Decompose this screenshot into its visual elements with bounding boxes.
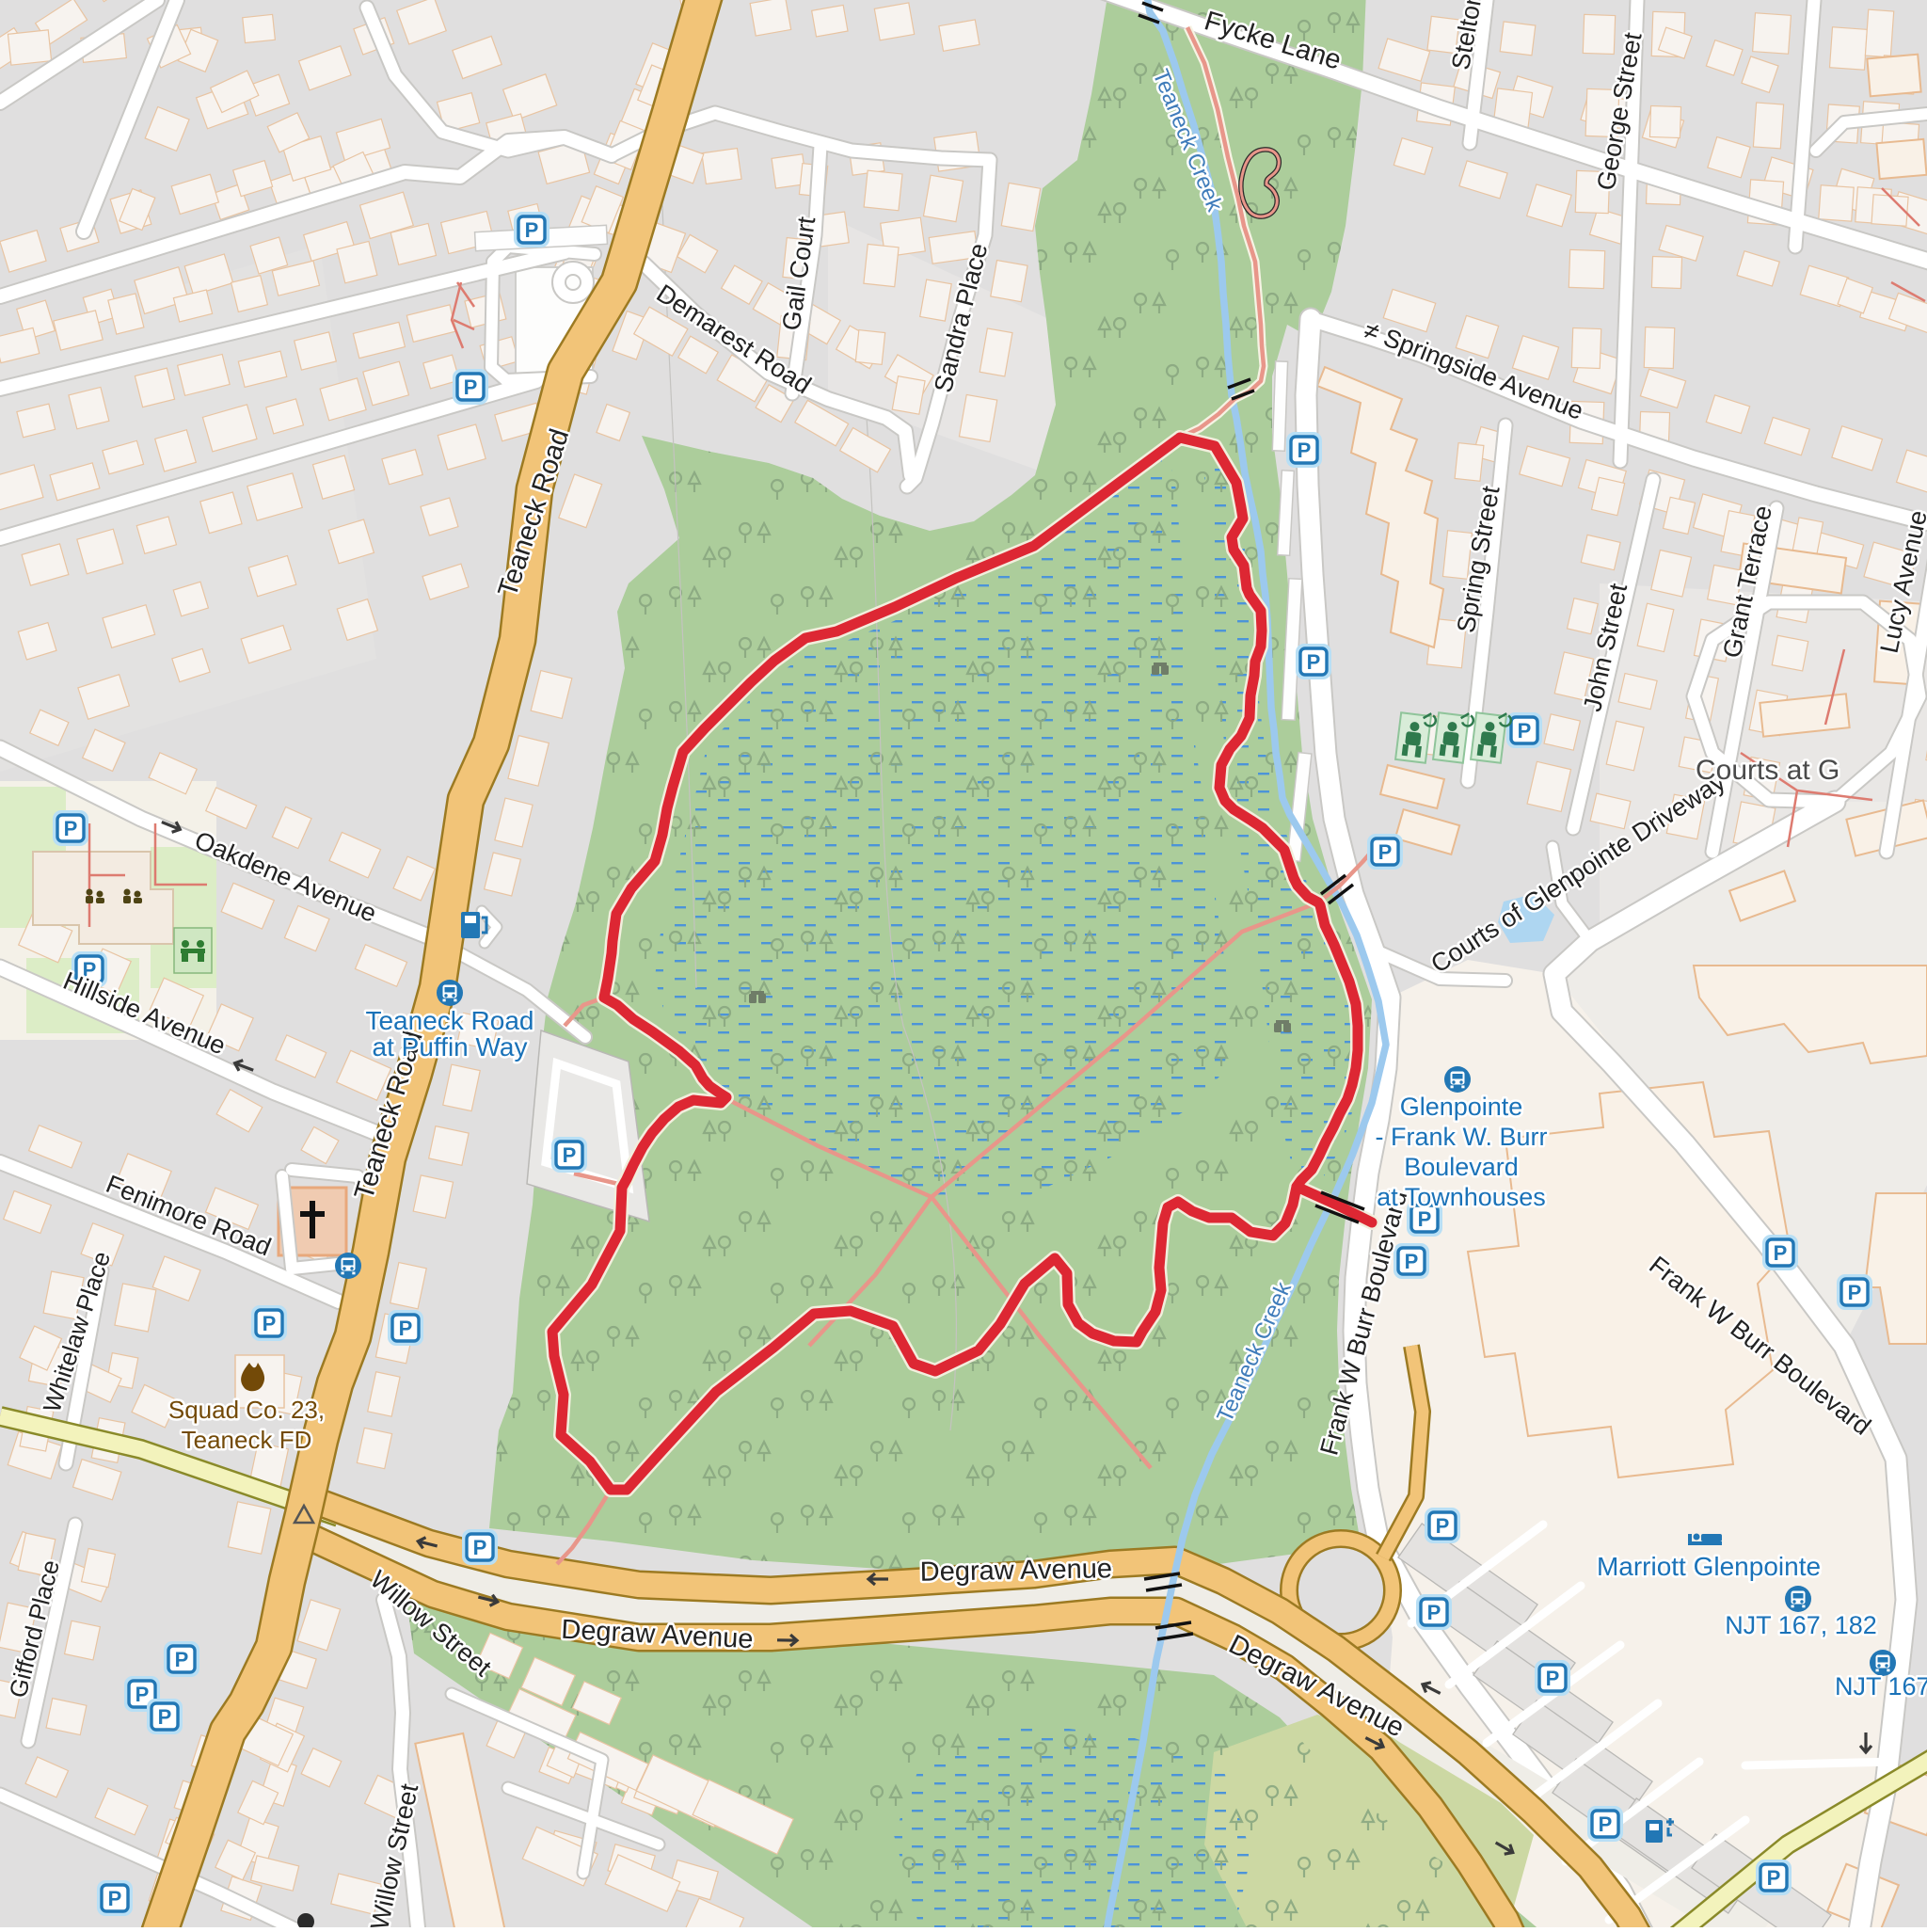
svg-text:NJT 167, 182: NJT 167, 182 [1725,1611,1877,1639]
svg-text:P: P [1298,439,1312,462]
svg-text:P: P [1848,1281,1862,1304]
svg-text:P: P [108,1887,122,1910]
svg-text:P: P [1767,1866,1781,1890]
svg-text:P: P [1378,840,1393,864]
svg-text:Teaneck Road: Teaneck Road [365,1006,534,1035]
svg-text:Courts at G: Courts at G [1696,755,1839,786]
svg-text:Glenpointe: Glenpointe [1400,1093,1523,1121]
svg-text:P: P [1599,1812,1613,1836]
svg-text:Teaneck FD: Teaneck FD [182,1426,312,1454]
svg-text:P: P [464,375,478,399]
svg-text:P: P [1546,1667,1560,1690]
svg-text:P: P [64,817,78,840]
svg-text:P: P [263,1312,277,1335]
svg-text:P: P [158,1705,172,1729]
svg-text:Marriott Glenpointe: Marriott Glenpointe [1597,1552,1821,1581]
svg-text:at Townhouses: at Townhouses [1377,1183,1546,1211]
svg-text:NJT 167, 18: NJT 167, 18 [1835,1672,1927,1700]
svg-text:Boulevard: Boulevard [1404,1153,1519,1181]
svg-text:P: P [1427,1601,1441,1624]
svg-text:P: P [563,1143,577,1167]
svg-text:P: P [525,218,539,242]
svg-text:P: P [473,1536,487,1559]
svg-text:P: P [175,1648,189,1671]
svg-text:P: P [399,1317,413,1340]
svg-text:at Puffin Way: at Puffin Way [373,1032,528,1062]
svg-text:- Frank W. Burr: - Frank W. Burr [1375,1123,1547,1151]
svg-text:Degraw Avenue: Degraw Avenue [919,1554,1112,1588]
svg-text:P: P [135,1683,150,1706]
svg-text:Squad Co. 23,: Squad Co. 23, [168,1396,325,1424]
svg-text:P: P [1436,1514,1450,1538]
svg-text:P: P [1518,719,1532,742]
svg-text:P: P [1405,1250,1419,1273]
svg-text:P: P [1774,1241,1788,1265]
svg-text:P: P [1307,650,1321,674]
